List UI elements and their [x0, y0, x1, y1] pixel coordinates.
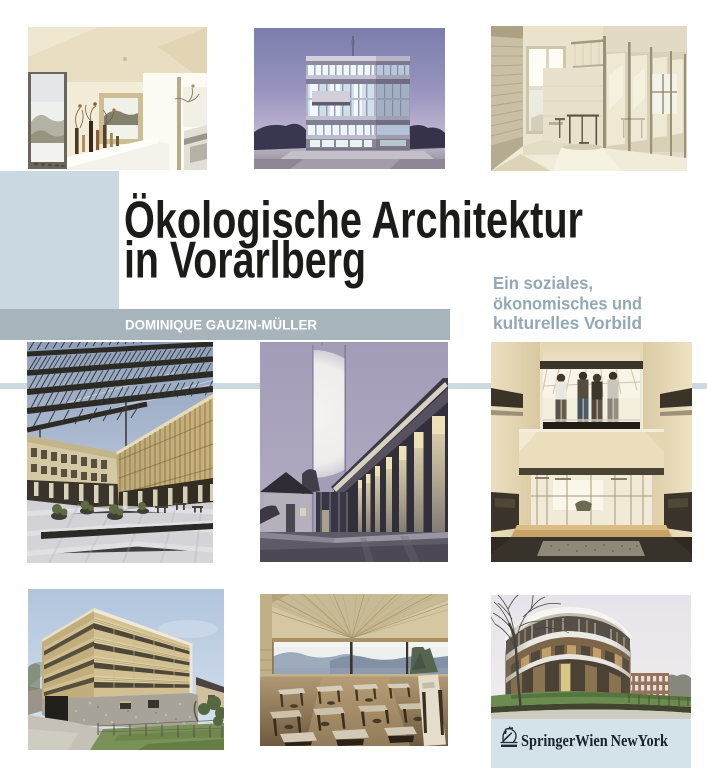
svg-text:in Vorarlberg: in Vorarlberg [124, 232, 366, 290]
svg-text:ökonomisches und: ökonomisches und [493, 294, 642, 314]
svg-text:Ökologische Architektur: Ökologische Architektur [124, 192, 583, 250]
svg-text:kulturelles Vorbild: kulturelles Vorbild [493, 313, 642, 333]
svg-text:SpringerWien NewYork: SpringerWien NewYork [521, 731, 669, 750]
svg-text:Ein soziales,: Ein soziales, [493, 273, 593, 293]
